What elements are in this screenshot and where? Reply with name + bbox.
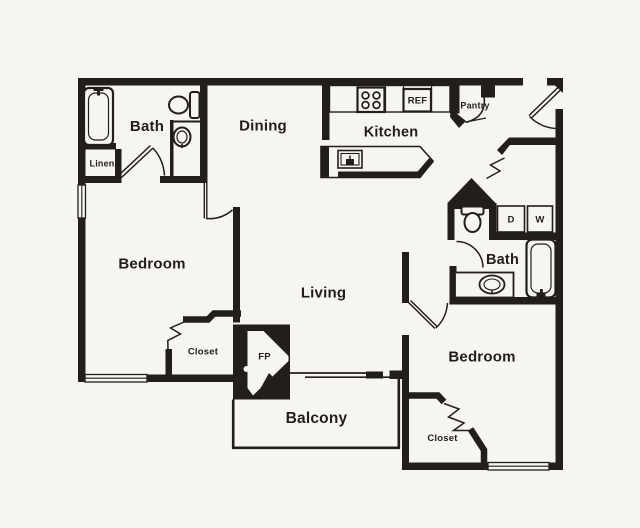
bifold-door-closet-1 <box>168 322 184 350</box>
label-kitchen: Kitchen <box>364 125 419 141</box>
floor-plan-drawing: Bath Linen Dining Kitchen Pantry REF Bed… <box>0 0 640 528</box>
bifold-door-hall <box>487 158 505 179</box>
label-bath-1: Bath <box>130 118 164 135</box>
window-left-bedroom-1 <box>78 185 86 218</box>
stove <box>358 88 385 113</box>
floor-plan-page: Bath Linen Dining Kitchen Pantry REF Bed… <box>0 0 640 528</box>
label-living: Living <box>301 285 346 302</box>
bathtub-1 <box>84 88 113 146</box>
label-balcony: Balcony <box>286 410 348 427</box>
door-bedroom-2 <box>409 301 448 329</box>
label-closet-1: Closet <box>188 347 219 358</box>
label-bath-2: Bath <box>486 252 519 268</box>
bifold-door-closet-2 <box>444 404 470 431</box>
label-fireplace: FP <box>258 352 271 363</box>
label-dryer: D <box>507 215 514 226</box>
island-sink <box>338 151 362 169</box>
door-bath-1 <box>119 146 165 178</box>
label-bedroom-1: Bedroom <box>118 256 185 273</box>
vanity-sink-2 <box>455 273 514 298</box>
label-washer: W <box>535 215 544 226</box>
toilet-1 <box>169 92 200 118</box>
window-bottom-bedroom-1 <box>85 375 147 383</box>
label-closet-2: Closet <box>427 433 458 444</box>
label-ref: REF <box>408 96 428 107</box>
door-bath-2 <box>457 242 484 268</box>
label-bedroom-2: Bedroom <box>448 349 515 366</box>
door-bedroom-1 <box>204 183 232 219</box>
label-dining: Dining <box>239 118 287 135</box>
toilet-2 <box>462 207 484 233</box>
bathtub-2 <box>527 240 556 298</box>
label-linen: Linen <box>90 159 115 169</box>
label-pantry: Pantry <box>460 101 489 111</box>
window-bottom-bedroom-2 <box>488 463 549 471</box>
room-labels: Bath Linen Dining Kitchen Pantry REF Bed… <box>90 96 545 445</box>
sink-1 <box>174 128 191 149</box>
